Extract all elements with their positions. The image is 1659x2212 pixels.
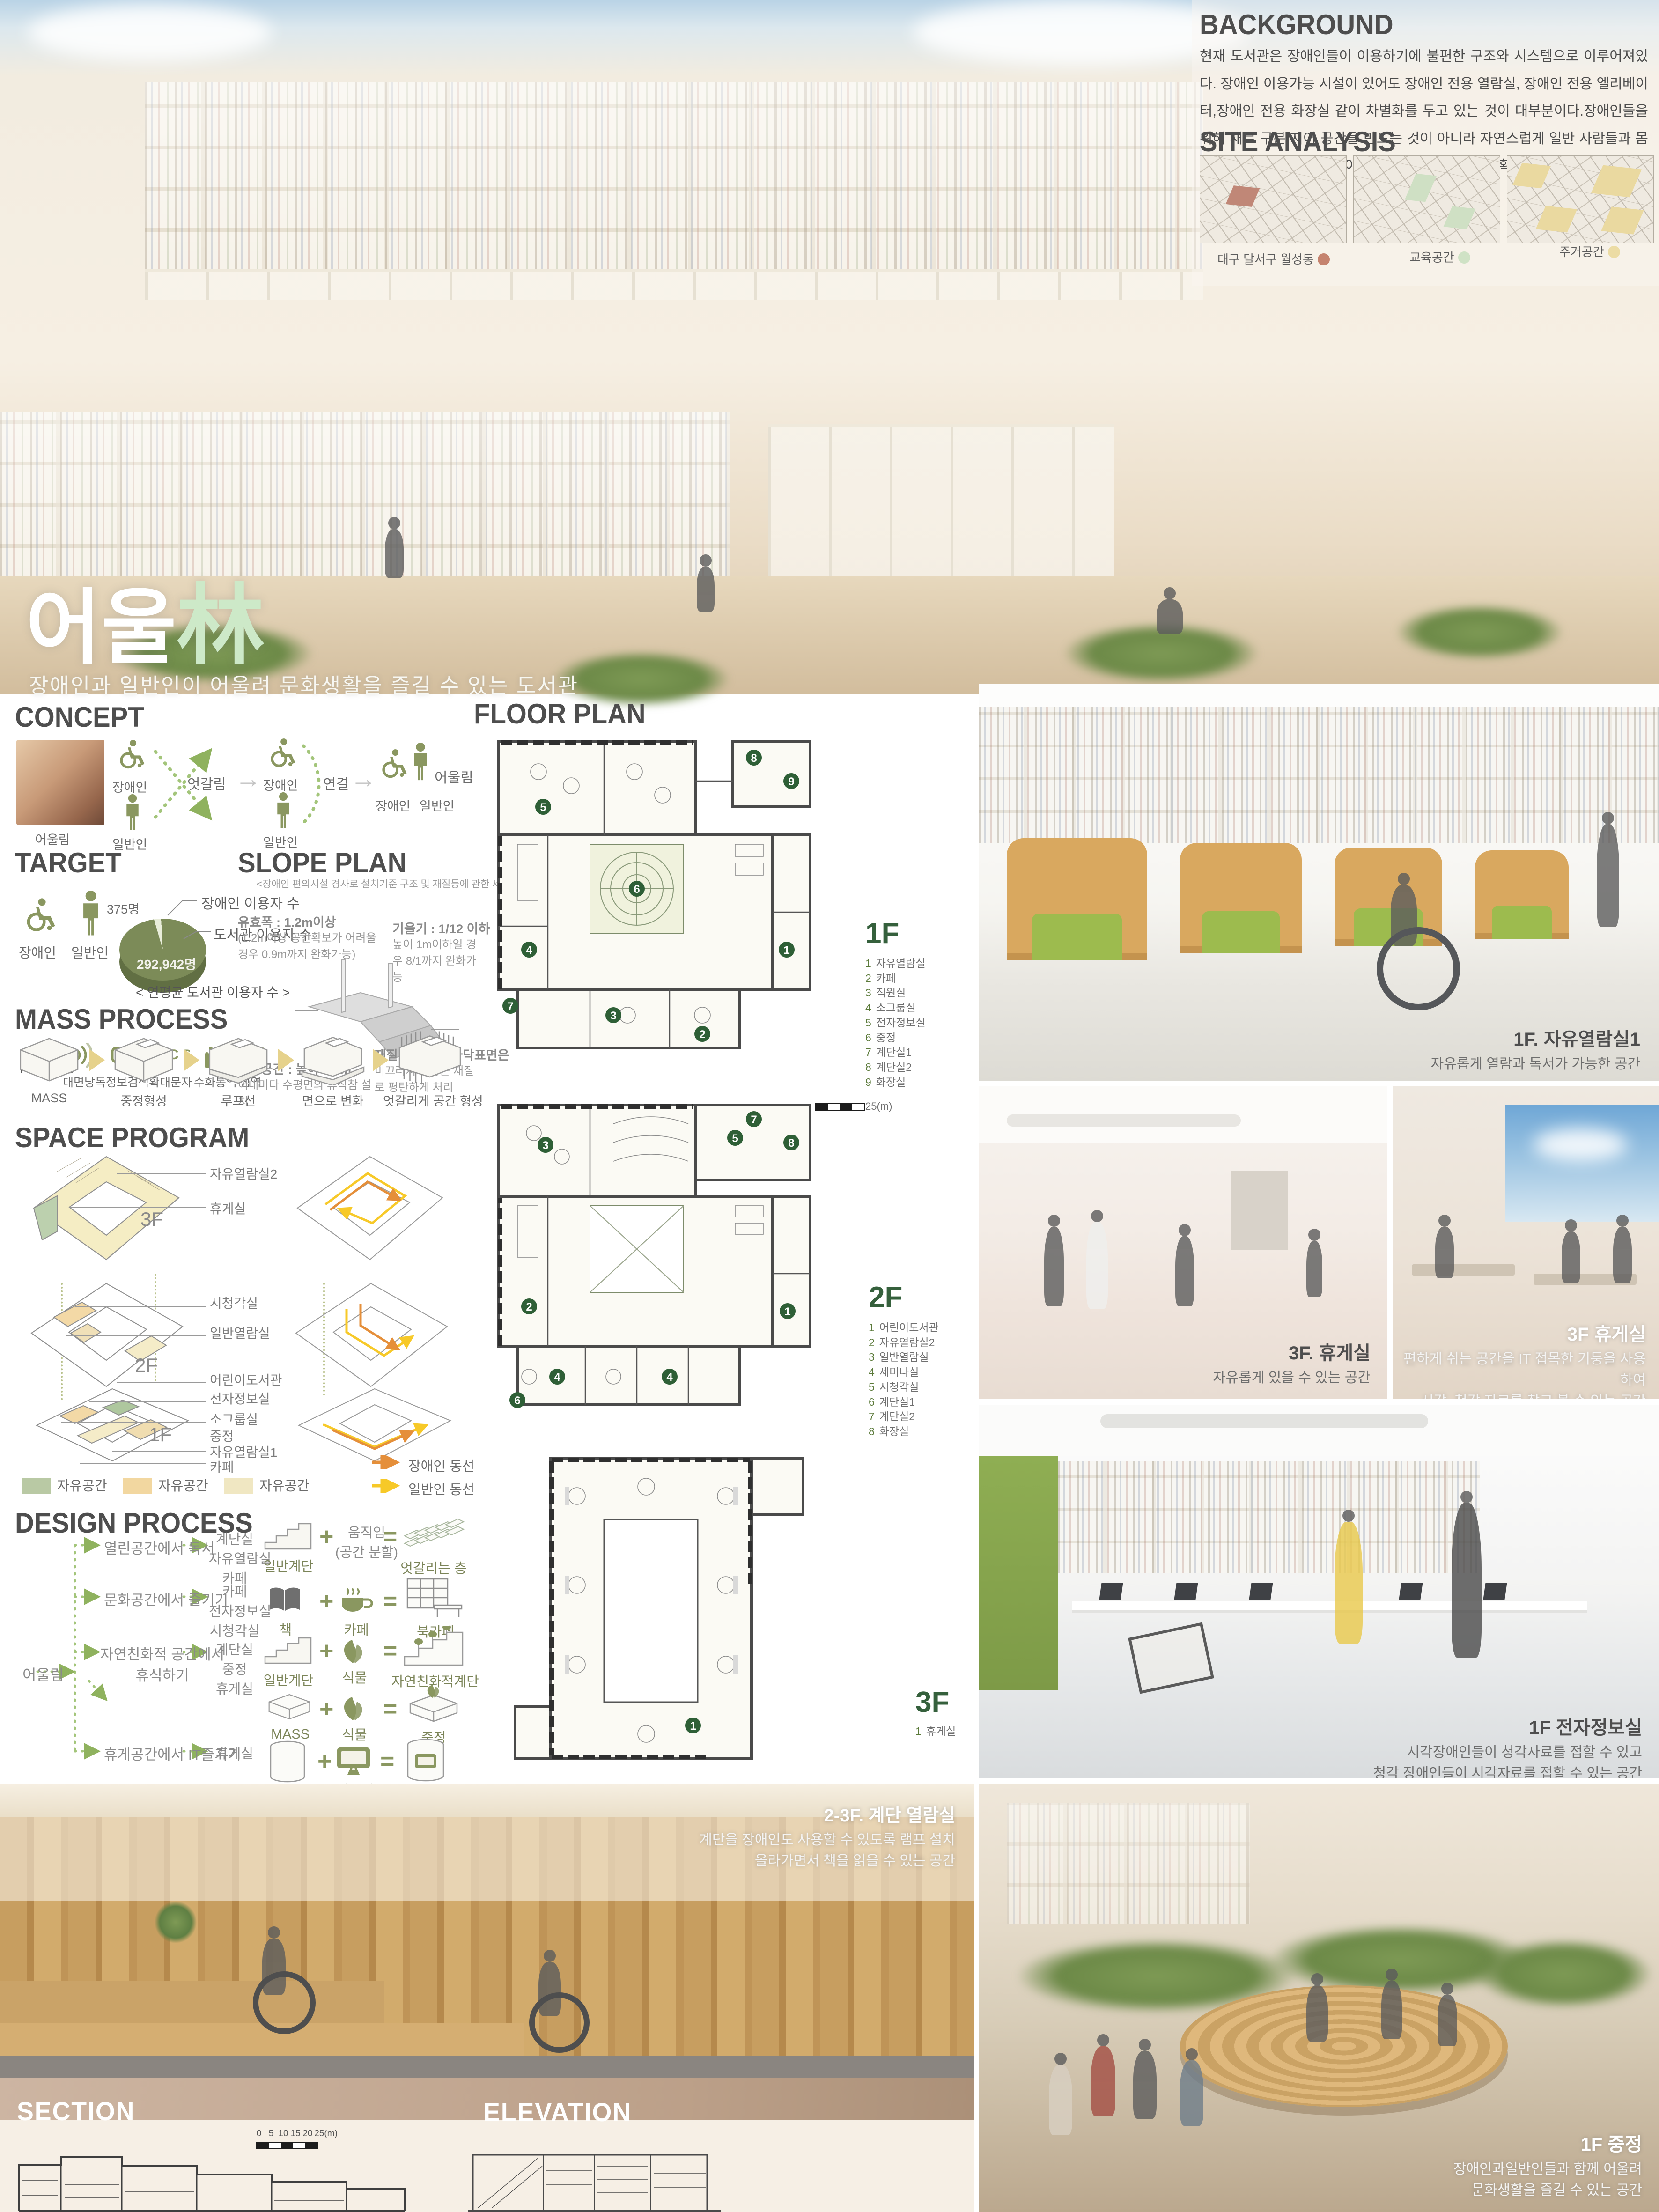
formula-result-label: 엇갈리는 층	[396, 1557, 471, 1577]
shrub-ring	[1475, 1939, 1653, 2009]
equals-icon: =	[383, 1695, 397, 1723]
mass-step-icon	[392, 1030, 467, 1086]
svg-text:2: 2	[526, 1301, 532, 1313]
person-silhouette	[1175, 1236, 1194, 1306]
circulation-label: 일반인 동선	[408, 1479, 474, 1498]
mass-step-label: 엇갈리게 공간 형성	[383, 1091, 477, 1109]
bookshelf-wall	[1058, 1461, 1480, 1573]
residential-patch	[1591, 165, 1642, 198]
plan-3f-rooms: 1휴게실	[915, 1724, 956, 1739]
result-label: 어울림	[435, 766, 473, 787]
space-label: 소그룹실	[210, 1409, 258, 1428]
plan-2f-rooms: 1어린이도서관 2자유열람실2 3일반열람실 4세미나실 5시청각실 6계단실1…	[869, 1320, 939, 1439]
drawing-scale-ticks: 0510152025(m)	[253, 2129, 338, 2139]
svg-text:8: 8	[788, 1137, 794, 1150]
ceiling-light	[1007, 1114, 1241, 1127]
render-caption: 2-3F. 계단 열람실 계단을 장애인도 사용할 수 있도록 램프 설치 올라…	[699, 1803, 955, 1872]
stairs-icon	[262, 1521, 314, 1552]
wheelchair-icon	[116, 734, 147, 774]
plan-3f: 1	[473, 1445, 848, 1777]
bookcafe-icon	[404, 1576, 465, 1619]
svg-text:5: 5	[540, 801, 546, 814]
staggered-floors-icon	[401, 1515, 466, 1555]
interior-bookshelf	[1007, 1803, 1250, 1924]
monitor-icon	[335, 1746, 373, 1777]
project-subtitle: 장애인과 일반인이 어울려 문화생활을 즐길 수 있는 도서관	[29, 669, 579, 699]
result-general-label: 일반인	[420, 796, 455, 814]
plus-icon: +	[319, 1695, 333, 1723]
yellow-arrow-icon	[184, 1049, 199, 1071]
plan-1f-rooms: 1자유열람실 2카페 3직원실 4소그룹실 5전자정보실 6중정 7계단실1 8…	[865, 956, 926, 1090]
branch-spaces: 휴게실	[209, 1743, 260, 1762]
mass-process-title: MASS PROCESS	[15, 1003, 228, 1035]
upper-bookshelf-band	[145, 82, 1203, 269]
circulation-label: 장애인 동선	[408, 1455, 474, 1475]
wood-booth	[1180, 843, 1302, 953]
person-silhouette	[1613, 1227, 1632, 1283]
svg-text:4: 4	[526, 944, 532, 957]
map-label-location: 대구 달서구 월성동	[1217, 250, 1330, 267]
person-yellow-jacket	[1335, 1522, 1363, 1644]
floor-label-3f: 3F	[140, 1208, 163, 1231]
mass-step-label: 루프선	[203, 1091, 273, 1109]
render-caption: 3F 휴게실 편하게 쉬는 공간을 IT 접목한 기둥을 사용하여 시각. 청각…	[1393, 1320, 1646, 1399]
tablet-display	[1249, 1583, 1273, 1600]
render-courtyard: 1F 중정 장애인과일반인들과 함께 어울려 문화생활을 즐길 수 있는 공간	[979, 1784, 1659, 2212]
plus-icon: +	[317, 1747, 332, 1776]
svg-text:3: 3	[610, 1010, 616, 1022]
presentation-board: 어울林 장애인과 일반인이 어울려 문화생활을 즐길 수 있는 도서관 BACK…	[0, 0, 1659, 2212]
space-label: 일반열람실	[210, 1323, 270, 1342]
pie-small-value: 375명	[107, 899, 140, 917]
tablet-display	[1399, 1583, 1423, 1600]
wheelchair-icon	[267, 733, 298, 773]
photo-label: 어울림	[35, 830, 70, 848]
render-digital-room: 1F 전자정보실 시각장애인들이 청각자료를 접할 수 있고 청각 장애인들이 …	[979, 1405, 1659, 1778]
mass-step-label: MASS	[14, 1091, 84, 1106]
leader-line	[94, 1438, 206, 1438]
svg-text:9: 9	[788, 775, 794, 788]
disabled-label: 장애인	[263, 775, 298, 794]
person-silhouette	[385, 529, 404, 578]
courtyard-box-icon	[406, 1684, 462, 1724]
leader-line	[75, 1306, 206, 1307]
equals-icon: =	[383, 1523, 397, 1551]
wheelchair-wheel	[529, 1992, 590, 2053]
it-column-icon	[405, 1738, 447, 1783]
svg-text:1: 1	[783, 944, 789, 957]
svg-text:7: 7	[751, 1113, 757, 1126]
scale-label: 25(m)	[865, 1100, 892, 1113]
svg-text:3: 3	[542, 1139, 548, 1152]
wheelchair-icon	[22, 892, 58, 938]
stair-step	[0, 1981, 384, 2023]
wheelchair-user-silhouette	[697, 567, 715, 612]
axon-1f-circulation	[295, 1387, 454, 1464]
drawings-strip: SECTION ELEVATION 0510152025(m)	[0, 2078, 974, 2212]
pie-small-label: 장애인 이용자 수	[201, 892, 300, 913]
svg-text:2: 2	[699, 1028, 705, 1041]
slope-plan-title: SLOPE PLAN	[238, 847, 406, 879]
yellow-swatch	[224, 1478, 253, 1494]
result-disabled-label: 장애인	[376, 796, 411, 814]
cross-label: 엇갈림	[187, 773, 226, 793]
residential-patch	[1536, 206, 1578, 232]
render-stair-reading: 2-3F. 계단 열람실 계단을 장애인도 사용할 수 있도록 램프 설치 올라…	[0, 1784, 974, 2078]
floor-label-1f: 1F	[149, 1423, 172, 1446]
tablet-display	[1099, 1583, 1123, 1600]
concept-title: CONCEPT	[15, 701, 144, 733]
wheelchair-wheel	[253, 1971, 316, 2034]
space-label: 카페	[210, 1457, 234, 1476]
leader-line	[66, 1335, 206, 1336]
yellow-arrow-icon	[278, 1049, 294, 1071]
leader-line	[117, 1382, 206, 1383]
mass-step-icon	[109, 1034, 179, 1085]
space-label: 자유열람실2	[210, 1164, 277, 1183]
elevation-drawing	[468, 2152, 721, 2212]
yellow-arrow-icon	[89, 1049, 105, 1071]
title-hanja: 林	[177, 576, 265, 675]
wheelchair-wheel	[1377, 927, 1460, 1010]
person-silhouette	[1452, 1503, 1482, 1658]
circular-wood-deck	[1180, 1985, 1508, 2107]
disabled-circulation-arrow	[370, 1455, 403, 1469]
lower-bookshelf-band	[0, 412, 730, 585]
plan-1f: 547 632 189	[473, 725, 848, 1069]
svg-text:6: 6	[514, 1394, 520, 1407]
person-icon	[123, 794, 142, 832]
plus-icon: +	[319, 1637, 333, 1665]
legend-item: 자유공간	[22, 1475, 107, 1495]
arrow-right-icon: →	[350, 763, 376, 794]
target-title: TARGET	[15, 847, 122, 879]
disabled-label: 장애인	[112, 777, 147, 796]
plan-3f-label: 3F	[915, 1686, 949, 1719]
branch-spaces: 계단실 중정 휴게실	[209, 1639, 260, 1698]
space-label: 어린이도서관	[210, 1370, 282, 1389]
location-dot	[1318, 253, 1330, 265]
branch-activity: 자연친화적 공간에서 휴식하기	[100, 1643, 224, 1685]
branch-spaces: 카페 전자정보실 시청각실	[209, 1581, 260, 1640]
render-caption: 1F. 자유열람실1 자유롭게 열람과 독서가 가능한 공간	[1431, 1025, 1640, 1075]
residential-patch	[1601, 206, 1644, 234]
svg-text:4: 4	[554, 1371, 560, 1384]
plan-1f-label: 1F	[865, 917, 899, 950]
equals-icon: =	[383, 1587, 397, 1615]
education-patch	[1444, 206, 1476, 229]
general-label: 일반인	[71, 942, 109, 962]
person-red-jacket	[1091, 2046, 1115, 2116]
tablet-display	[1174, 1583, 1198, 1600]
shrub	[1395, 604, 1564, 660]
arrow-right-icon: →	[235, 763, 261, 794]
map-label-education: 교육공간	[1409, 248, 1470, 265]
education-dot	[1458, 251, 1470, 264]
child-silhouette	[1306, 1241, 1322, 1297]
legend-item: 자유공간	[224, 1475, 310, 1495]
person-silhouette	[1180, 2060, 1203, 2126]
wood-booth	[1475, 850, 1569, 939]
pie-big-value: 292,942명	[137, 954, 196, 973]
person-silhouette	[1435, 1227, 1454, 1278]
orange-swatch	[123, 1478, 152, 1494]
equals-icon: =	[380, 1747, 394, 1776]
render-rest-room-a: 3F. 휴게실 자유롭게 있을 수 있는 공간	[979, 1086, 1387, 1399]
leader-line	[80, 1463, 206, 1464]
display-table	[1072, 1601, 1587, 1610]
people-photo	[16, 740, 104, 825]
wood-booth	[1007, 838, 1147, 960]
green-swatch	[22, 1478, 51, 1494]
elevation-title: ELEVATION	[483, 2097, 632, 2127]
book-icon	[267, 1585, 302, 1614]
person-silhouette	[1044, 1227, 1064, 1306]
mass-step-label: 중정형성	[109, 1091, 179, 1109]
render-reading-room: 1F. 자유열람실1 자유롭게 열람과 독서가 가능한 공간	[979, 684, 1659, 1081]
mass-step-icon	[298, 1034, 368, 1085]
residential-patch	[1512, 163, 1551, 188]
bookshelf-wall	[979, 702, 1659, 843]
svg-text:4: 4	[666, 1371, 673, 1384]
person-silhouette	[1381, 1981, 1402, 2039]
site-map-location	[1200, 155, 1347, 243]
plan-2f: 352 446 781	[473, 1091, 848, 1426]
site-marker	[1226, 185, 1260, 207]
axon-3f-circulation	[293, 1153, 447, 1278]
ceiling	[979, 684, 1659, 707]
project-title: 어울林	[26, 582, 265, 670]
mass-step-icon	[203, 1034, 273, 1085]
legend-item: 자유공간	[123, 1475, 208, 1495]
person-icon	[273, 792, 293, 830]
person-silhouette	[1049, 2065, 1072, 2135]
svg-text:1: 1	[690, 1720, 696, 1733]
person-silhouette	[1306, 1985, 1328, 2042]
plus-icon: +	[319, 1523, 333, 1551]
plan-2f-label: 2F	[869, 1281, 902, 1314]
person-silhouette	[1597, 824, 1619, 927]
stair-step	[0, 2023, 524, 2056]
plus-icon: +	[319, 1587, 333, 1615]
map-label-residential: 주거공간	[1559, 243, 1620, 260]
leader-line	[89, 1401, 206, 1402]
site-map-education	[1353, 155, 1500, 243]
axon-2f-circulation	[290, 1281, 452, 1391]
yellow-arrow-icon	[373, 1049, 389, 1071]
section-title: SECTION	[17, 2096, 135, 2126]
person-silhouette	[1086, 1222, 1108, 1309]
green-wall	[979, 1456, 1058, 1690]
link-label: 연결	[323, 773, 349, 793]
title-korean: 어울	[26, 582, 177, 674]
stairs-icon	[262, 1635, 314, 1666]
background-title: BACKGROUND	[1200, 8, 1394, 41]
person-silhouette	[1133, 2051, 1157, 2119]
person-silhouette	[1438, 1995, 1457, 2046]
person-icon	[79, 891, 103, 937]
formula-a-label: 일반계단	[260, 1670, 317, 1689]
tablet-display	[1483, 1583, 1507, 1600]
ceiling	[979, 1405, 1659, 1456]
track-lighting	[1100, 1414, 1428, 1428]
site-analysis-title: SITE ANALYSIS	[1200, 125, 1396, 158]
leaf-icon	[338, 1636, 371, 1664]
leader-line	[61, 1422, 206, 1423]
render-caption: 1F 전자정보실 시각장애인들이 청각자료를 접할 수 있고 청각 장애인들이 …	[1373, 1714, 1642, 1778]
sky-window	[1505, 1105, 1659, 1222]
render-caption: 3F. 휴게실 자유롭게 있을 수 있는 공간	[1213, 1339, 1371, 1388]
disabled-label: 장애인	[19, 942, 56, 962]
glass-railing	[145, 269, 1203, 300]
section-drawing	[9, 2152, 412, 2212]
branch-spaces: 계단실 자유열람실 카페	[209, 1528, 260, 1587]
svg-text:7: 7	[507, 1000, 513, 1013]
table	[1412, 1264, 1515, 1276]
education-patch	[1405, 174, 1437, 202]
leaf-icon	[338, 1693, 371, 1721]
mass-step-icon	[14, 1034, 84, 1085]
site-analysis-maps	[1200, 155, 1654, 243]
photographer-silhouette	[1157, 599, 1183, 634]
floor-label-2f: 2F	[135, 1354, 158, 1377]
leader-line	[112, 1451, 206, 1452]
pie-caption: < 연평균 도서관 이용자 수 >	[136, 982, 290, 1001]
cloud	[28, 5, 272, 61]
glass-doors	[768, 424, 1114, 588]
space-program-title: SPACE PROGRAM	[15, 1121, 249, 1154]
space-label: 전자정보실	[210, 1389, 270, 1408]
design-root: 어울림	[22, 1663, 64, 1685]
person-icon	[410, 743, 431, 782]
cloud	[1534, 1128, 1627, 1161]
site-map-residential	[1507, 155, 1654, 243]
coffee-icon	[338, 1586, 374, 1615]
svg-text:5: 5	[732, 1132, 738, 1145]
mass-step-label: 면으로 변화	[298, 1091, 368, 1109]
mass-box-icon	[265, 1691, 314, 1722]
render-rest-room-b: 3F 휴게실 편하게 쉬는 공간을 IT 접목한 기둥을 사용하여 시각. 청각…	[1393, 1086, 1659, 1399]
potted-plant	[155, 1901, 197, 1943]
branch-activity: 열린공간에서 독서	[104, 1537, 215, 1558]
drawing-scale-bar	[256, 2142, 318, 2149]
equals-icon: =	[383, 1637, 397, 1665]
space-label: 시청각실	[210, 1293, 258, 1312]
leader-line	[70, 1207, 206, 1208]
formula-b-label: 식물	[338, 1724, 371, 1744]
space-label: 휴게실	[210, 1199, 246, 1217]
floor	[0, 2056, 974, 2078]
residential-dot	[1608, 246, 1620, 258]
leader-line	[117, 1173, 206, 1174]
formula-a-label: 일반계단	[260, 1556, 317, 1575]
art-panel	[1231, 1171, 1288, 1250]
green-stairs-icon	[401, 1626, 466, 1668]
person-silhouette	[1562, 1231, 1580, 1283]
formula-b-label: 식물	[338, 1667, 371, 1687]
column-icon	[268, 1740, 307, 1783]
wheelchair-icon	[378, 744, 409, 784]
svg-text:1: 1	[784, 1305, 790, 1318]
render-caption: 1F 중정 장애인과일반인들과 함께 어울려 문화생활을 즐길 수 있는 공간	[1453, 2131, 1642, 2201]
svg-text:6: 6	[634, 883, 640, 896]
svg-text:8: 8	[751, 752, 757, 765]
lounge-chair	[1128, 1622, 1214, 1694]
general-circulation-arrow	[370, 1479, 403, 1493]
